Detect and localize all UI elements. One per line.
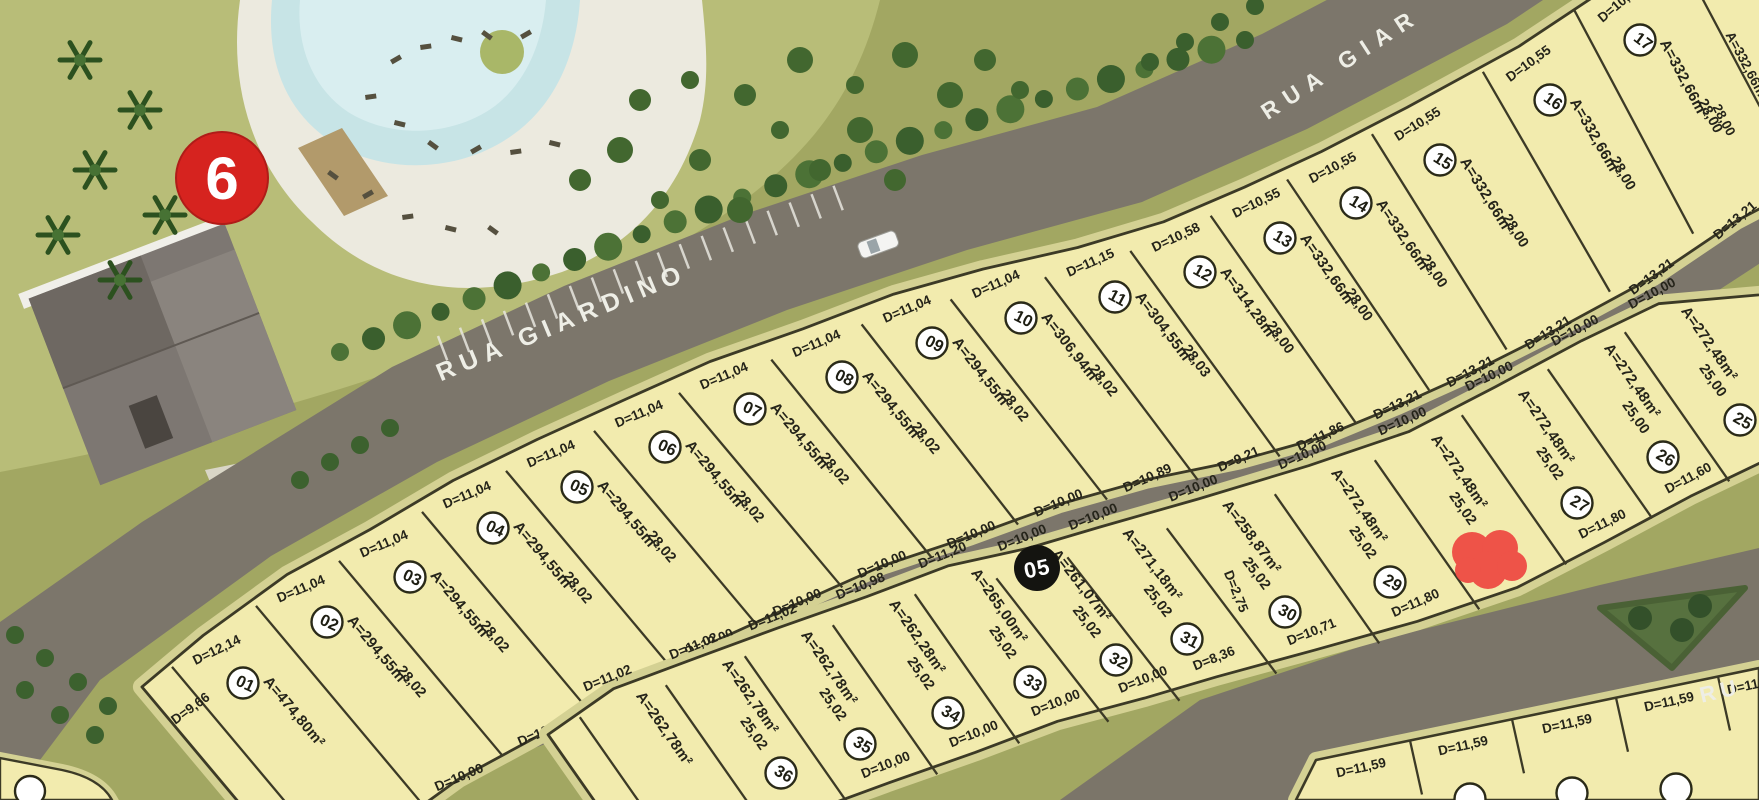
tree-icon — [569, 169, 591, 191]
tree-icon — [695, 196, 723, 224]
tree-icon — [965, 108, 988, 131]
tree-icon — [16, 681, 34, 699]
tree-icon — [629, 89, 651, 111]
tree-icon — [1035, 90, 1053, 108]
tree-icon — [847, 117, 873, 143]
tree-icon — [1197, 36, 1225, 64]
tree-icon — [771, 121, 789, 139]
tree-icon — [432, 303, 450, 321]
tree-icon — [996, 95, 1024, 123]
tree-icon — [734, 84, 756, 106]
tree-icon — [563, 248, 586, 271]
tree-icon — [594, 233, 622, 261]
tree-icon — [362, 327, 385, 350]
tree-icon — [884, 169, 906, 191]
tree-icon — [937, 82, 963, 108]
tree-icon — [1236, 31, 1254, 49]
tree-icon — [99, 697, 117, 715]
tree-icon — [393, 311, 421, 339]
tree-icon — [463, 287, 486, 310]
tree-icon — [1628, 606, 1652, 630]
tree-icon — [1097, 65, 1125, 93]
tree-icon — [865, 140, 888, 163]
tree-icon — [896, 127, 924, 155]
tree-icon — [321, 453, 339, 471]
tree-icon — [846, 76, 864, 94]
tree-icon — [291, 471, 309, 489]
tree-icon — [787, 47, 813, 73]
badge-number: 6 — [205, 145, 238, 212]
tree-icon — [86, 726, 104, 744]
tree-icon — [689, 149, 711, 171]
tree-icon — [51, 706, 69, 724]
tree-icon — [331, 343, 349, 361]
partial-lot-circle — [15, 776, 45, 800]
tree-icon — [664, 210, 687, 233]
tree-icon — [1670, 618, 1694, 642]
tree-icon — [1688, 594, 1712, 618]
partial-lot-circle — [1661, 774, 1692, 800]
tree-icon — [727, 197, 753, 223]
site-plan-canvas: A=474,80m²D=12,1401A=294,55m²28,02D=11,0… — [0, 0, 1759, 800]
tree-icon — [681, 71, 699, 89]
tree-icon — [809, 159, 831, 181]
tree-icon — [36, 649, 54, 667]
tree-icon — [1141, 53, 1159, 71]
partial-lot-circle — [1557, 778, 1588, 800]
tree-icon — [892, 42, 918, 68]
tree-icon — [834, 154, 852, 172]
tree-icon — [633, 225, 651, 243]
tree-icon — [764, 174, 787, 197]
tree-icon — [1166, 48, 1189, 71]
tree-icon — [651, 191, 669, 209]
tree-icon — [381, 419, 399, 437]
tree-icon — [934, 121, 952, 139]
tree-icon — [1211, 13, 1229, 31]
tree-icon — [974, 49, 996, 71]
tree-icon — [494, 271, 522, 299]
tree-icon — [1011, 81, 1029, 99]
tree-icon — [1066, 77, 1089, 100]
tree-icon — [607, 137, 633, 163]
block-marker-05: 05 — [1014, 545, 1060, 591]
location-badge-6[interactable]: 6 — [176, 132, 268, 224]
tree-icon — [6, 626, 24, 644]
site-plan-map: A=474,80m²D=12,1401A=294,55m²28,02D=11,0… — [0, 0, 1759, 800]
tree-icon — [69, 673, 87, 691]
tree-icon — [351, 436, 369, 454]
tree-icon — [1176, 33, 1194, 51]
tree-icon — [532, 263, 550, 281]
